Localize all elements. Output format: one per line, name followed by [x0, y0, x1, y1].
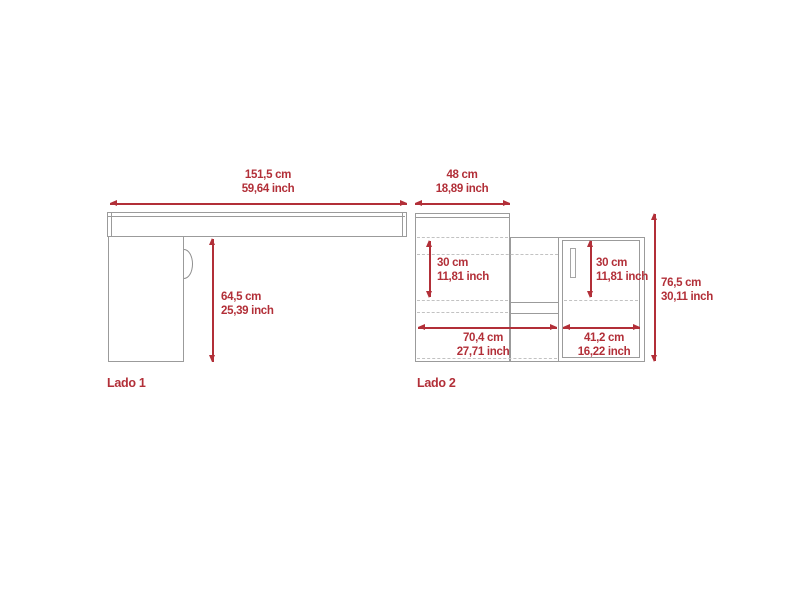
desk-top-right-edge-line — [402, 213, 403, 236]
hidden-shelf-line — [417, 254, 558, 255]
door-clearance-dimension-line — [590, 241, 592, 297]
left-width-inch: 27,71 inch — [433, 346, 533, 360]
desk-width-inch: 59,64 inch — [183, 183, 353, 197]
desk-width-dimension-line — [110, 203, 407, 205]
left-clearance-inch: 11,81 inch — [437, 271, 489, 285]
panel-handle-arc — [184, 249, 193, 279]
depth-label: 48 cm 18,89 inch — [412, 169, 512, 196]
depth-inch: 18,89 inch — [412, 183, 512, 197]
desk-width-cm: 151,5 cm — [183, 169, 353, 183]
overall-height-label: 76,5 cm 30,11 inch — [661, 277, 713, 304]
hidden-shelf-line — [417, 312, 508, 313]
desk-width-label: 151,5 cm 59,64 inch — [183, 169, 353, 196]
left-width-label: 70,4 cm 27,71 inch — [433, 332, 533, 359]
door-handle — [570, 248, 576, 278]
arrowhead-right-icon — [633, 324, 640, 330]
depth-cm: 48 cm — [412, 169, 512, 183]
arrowhead-left-icon — [110, 200, 117, 206]
arrowhead-up-icon — [587, 240, 593, 247]
arrowhead-right-icon — [503, 200, 510, 206]
middle-shelf-line — [511, 313, 558, 314]
left-clearance-label: 30 cm 11,81 inch — [437, 257, 489, 284]
desk-side-panel — [108, 236, 184, 362]
arrowhead-right-icon — [400, 200, 407, 206]
furniture-dimension-diagram: 151,5 cm 59,64 inch 64,5 cm 25,39 inch L… — [0, 0, 800, 600]
arrowhead-up-icon — [651, 213, 657, 220]
desk-height-dimension-line — [212, 239, 214, 362]
middle-shelf-line — [511, 302, 558, 303]
door-width-cm: 41,2 cm — [554, 332, 654, 346]
hidden-shelf-line — [417, 300, 508, 301]
arrowhead-left-icon — [563, 324, 570, 330]
arrowhead-right-icon — [550, 324, 557, 330]
arrowhead-down-icon — [209, 355, 215, 362]
arrowhead-down-icon — [426, 291, 432, 298]
arrowhead-left-icon — [415, 200, 422, 206]
door-width-inch: 16,22 inch — [554, 346, 654, 360]
hidden-shelf-line — [564, 300, 638, 301]
desk-top-left-edge-line — [111, 213, 112, 236]
door-width-label: 41,2 cm 16,22 inch — [554, 332, 654, 359]
cabinet-top-edge-line — [416, 217, 509, 218]
arrowhead-up-icon — [209, 238, 215, 245]
desk-height-inch: 25,39 inch — [221, 305, 274, 319]
left-clearance-cm: 30 cm — [437, 257, 489, 271]
depth-dimension-line — [415, 203, 510, 205]
side1-label: Lado 1 — [107, 376, 145, 390]
left-width-dimension-line — [418, 327, 557, 329]
overall-height-dimension-line — [654, 214, 656, 361]
door-width-dimension-line — [563, 327, 640, 329]
hidden-shelf-line — [417, 237, 508, 238]
arrowhead-left-icon — [418, 324, 425, 330]
door-clearance-inch: 11,81 inch — [596, 271, 648, 285]
desk-top-edge-line — [108, 216, 405, 217]
door-clearance-cm: 30 cm — [596, 257, 648, 271]
desk-height-label: 64,5 cm 25,39 inch — [221, 291, 274, 318]
desk-height-cm: 64,5 cm — [221, 291, 274, 305]
arrowhead-down-icon — [651, 355, 657, 362]
arrowhead-up-icon — [426, 240, 432, 247]
left-width-cm: 70,4 cm — [433, 332, 533, 346]
door-clearance-label: 30 cm 11,81 inch — [596, 257, 648, 284]
overall-height-inch: 30,11 inch — [661, 291, 713, 305]
arrowhead-down-icon — [587, 291, 593, 298]
left-clearance-dimension-line — [429, 241, 431, 297]
overall-height-cm: 76,5 cm — [661, 277, 713, 291]
side2-label: Lado 2 — [417, 376, 455, 390]
